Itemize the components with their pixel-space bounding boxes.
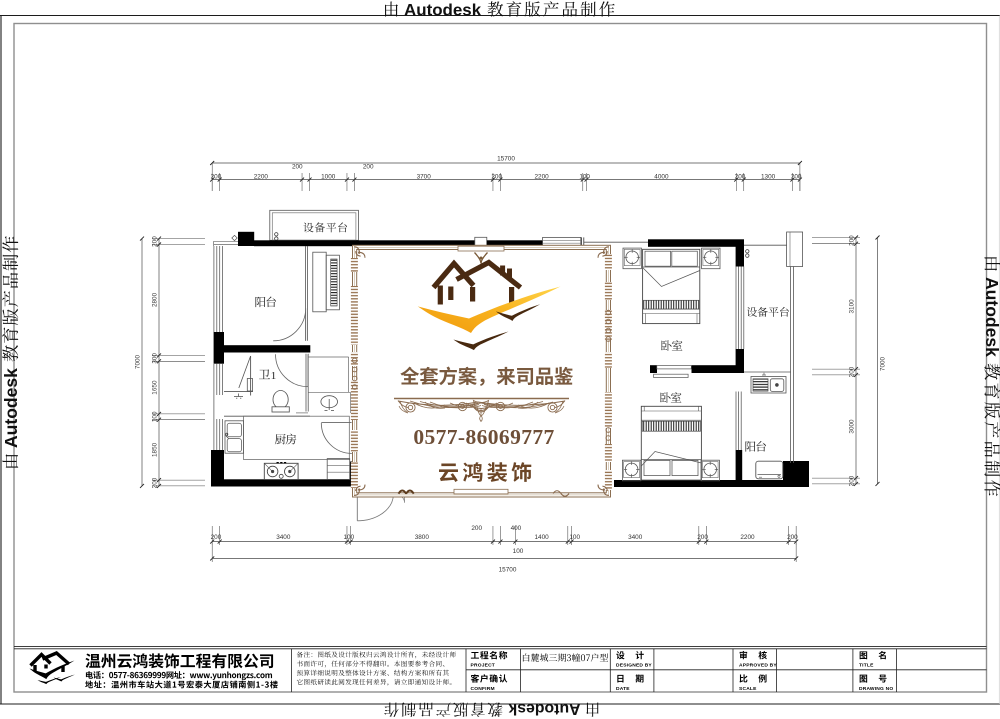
svg-text:3800: 3800 xyxy=(415,534,430,541)
svg-text:200: 200 xyxy=(848,366,855,377)
svg-text:200: 200 xyxy=(787,534,798,541)
svg-text:DRAWING NO: DRAWING NO xyxy=(859,686,893,692)
svg-text:Autodesk: Autodesk xyxy=(404,0,482,19)
svg-text:200: 200 xyxy=(791,173,802,180)
svg-text:100: 100 xyxy=(343,534,354,541)
svg-text:200: 200 xyxy=(471,525,482,532)
svg-text:SCALE: SCALE xyxy=(739,686,757,692)
svg-text:4000: 4000 xyxy=(654,173,669,180)
svg-text:7000: 7000 xyxy=(880,356,887,371)
svg-text:DATE: DATE xyxy=(616,686,630,692)
svg-text:DESIGNED BY: DESIGNED BY xyxy=(616,663,652,669)
svg-text:100: 100 xyxy=(569,534,580,541)
svg-text:400: 400 xyxy=(511,525,522,532)
svg-text:1000: 1000 xyxy=(321,173,336,180)
svg-text:Autodesk: Autodesk xyxy=(508,700,580,717)
svg-text:CONFIRM: CONFIRM xyxy=(471,686,495,692)
svg-text:200: 200 xyxy=(292,164,303,171)
svg-text:200: 200 xyxy=(363,164,374,171)
svg-text:200: 200 xyxy=(697,534,708,541)
svg-text:1400: 1400 xyxy=(535,534,550,541)
svg-text:3400: 3400 xyxy=(628,534,643,541)
svg-text:100: 100 xyxy=(513,548,524,555)
svg-text:300: 300 xyxy=(151,353,158,364)
svg-text:15700: 15700 xyxy=(499,567,517,574)
svg-text:2200: 2200 xyxy=(254,173,269,180)
svg-text:2200: 2200 xyxy=(740,534,755,541)
svg-text:APPROVED BY: APPROVED BY xyxy=(739,663,777,669)
svg-text:3700: 3700 xyxy=(417,173,432,180)
svg-text:TITLE: TITLE xyxy=(859,663,874,669)
svg-text:200: 200 xyxy=(848,235,855,246)
svg-text:2200: 2200 xyxy=(535,173,550,180)
svg-text:1300: 1300 xyxy=(761,173,776,180)
svg-text:1: 1 xyxy=(271,370,277,382)
svg-text:100: 100 xyxy=(151,411,158,422)
svg-text:3400: 3400 xyxy=(276,534,291,541)
svg-text:PROJECT: PROJECT xyxy=(471,663,496,669)
svg-text:0577-86069777: 0577-86069777 xyxy=(413,425,554,449)
svg-text:100: 100 xyxy=(579,173,590,180)
svg-text:2800: 2800 xyxy=(151,292,158,307)
svg-text:3100: 3100 xyxy=(848,299,855,314)
svg-text:1850: 1850 xyxy=(151,442,158,457)
svg-text:15700: 15700 xyxy=(497,155,515,162)
svg-text:200: 200 xyxy=(151,236,158,247)
svg-text:200: 200 xyxy=(491,173,502,180)
svg-text:200: 200 xyxy=(151,477,158,488)
svg-text:200: 200 xyxy=(735,173,746,180)
svg-text:Autodesk: Autodesk xyxy=(1,368,21,448)
svg-text:200: 200 xyxy=(211,534,222,541)
svg-text:1650: 1650 xyxy=(151,380,158,395)
svg-text:200: 200 xyxy=(848,475,855,486)
svg-text:7000: 7000 xyxy=(134,354,141,369)
svg-text:200: 200 xyxy=(211,173,222,180)
svg-text:Autodesk: Autodesk xyxy=(982,277,1000,357)
svg-text:3000: 3000 xyxy=(848,419,855,434)
